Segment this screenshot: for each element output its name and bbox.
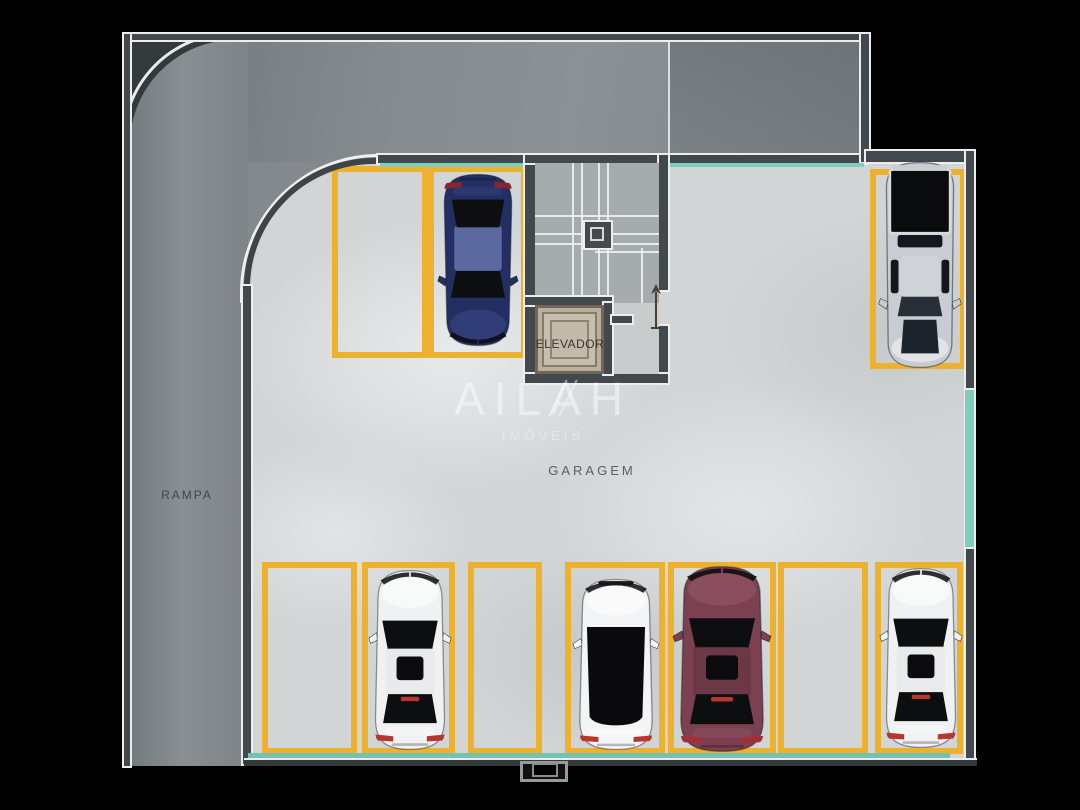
car-maroon-sedan xyxy=(672,564,772,754)
car-white-hatch xyxy=(572,577,660,752)
car-blue-suv xyxy=(437,172,519,348)
car-silver-pickup xyxy=(877,159,963,371)
ramp-label: RAMPA xyxy=(126,488,248,502)
car-white-sedan-2 xyxy=(879,566,963,750)
elevator-label: ELEVADOR xyxy=(528,337,612,351)
cars-layer xyxy=(0,0,1080,810)
garage-floor-plan: ELEVADOR xyxy=(0,0,1080,810)
car-white-sedan-1 xyxy=(368,568,452,752)
garage-label: GARAGEM xyxy=(492,463,692,478)
entrance-arrow-icon xyxy=(649,284,663,335)
